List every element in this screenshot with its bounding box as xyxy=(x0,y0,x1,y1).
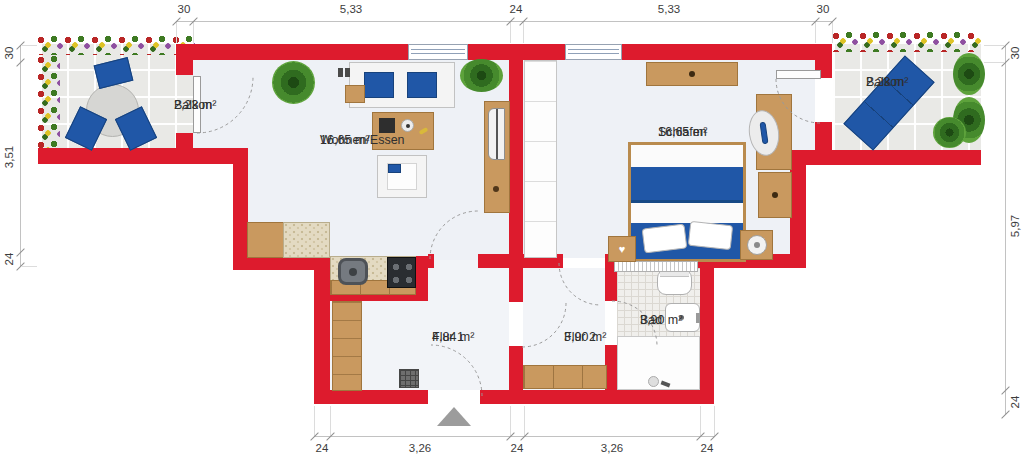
floor-plan: ♥ xyxy=(0,0,1024,459)
extension-line xyxy=(176,22,177,43)
door-arc xyxy=(430,211,478,259)
entrance-arrow-icon xyxy=(437,407,471,426)
room-area: 16,65 m² xyxy=(320,132,369,148)
dimension-line-left xyxy=(20,45,21,266)
extension-line xyxy=(984,45,1004,46)
extension-line xyxy=(714,406,715,436)
extension-line xyxy=(330,406,331,436)
dimension-label: 24 xyxy=(701,442,714,454)
door-arc xyxy=(776,79,820,123)
dimension-label: 24 xyxy=(316,442,329,454)
room-area: 2,23 m² xyxy=(866,74,908,90)
dimension-label: 30 xyxy=(1009,47,1021,60)
dimension-label: 5,33 xyxy=(340,3,362,15)
dimension-label: 24 xyxy=(3,253,15,266)
dimension-line-right xyxy=(1005,45,1006,414)
dimension-label: 3,51 xyxy=(3,146,15,168)
extension-line xyxy=(815,22,816,43)
extension-line xyxy=(524,406,525,436)
door-arcs xyxy=(0,0,1024,459)
extension-line xyxy=(314,406,315,436)
extension-line xyxy=(22,266,37,267)
extension-line xyxy=(700,406,701,436)
extension-line xyxy=(193,22,194,43)
dimension-label: 30 xyxy=(817,3,830,15)
dimension-label: 5,33 xyxy=(658,3,680,15)
door-arc xyxy=(522,303,566,347)
dimension-label: 24 xyxy=(1009,396,1021,409)
dimension-label: 24 xyxy=(511,442,524,454)
dimension-label: 3,26 xyxy=(601,442,623,454)
door-arc xyxy=(559,263,601,305)
extension-line xyxy=(523,22,524,43)
dimension-label: 30 xyxy=(3,47,15,60)
extension-line xyxy=(510,406,511,436)
room-area: 16,65 m² xyxy=(658,124,707,140)
dimension-line-bottom xyxy=(314,436,714,437)
dimension-label: 5,97 xyxy=(1009,215,1021,237)
extension-line xyxy=(510,22,511,43)
extension-line xyxy=(832,22,833,43)
room-area: 2,23 m² xyxy=(174,97,216,113)
room-area: 4,84 m² xyxy=(432,329,474,345)
dimension-label: 30 xyxy=(178,3,191,15)
dimension-label: 24 xyxy=(510,3,523,15)
dimension-label: 3,26 xyxy=(409,442,431,454)
door-arc xyxy=(431,345,482,396)
room-area: 3,90 m² xyxy=(640,312,682,328)
extension-line xyxy=(22,45,37,46)
extension-line xyxy=(984,62,1004,63)
dimension-line-top xyxy=(176,21,832,22)
room-area: 3,90 m² xyxy=(564,329,606,345)
